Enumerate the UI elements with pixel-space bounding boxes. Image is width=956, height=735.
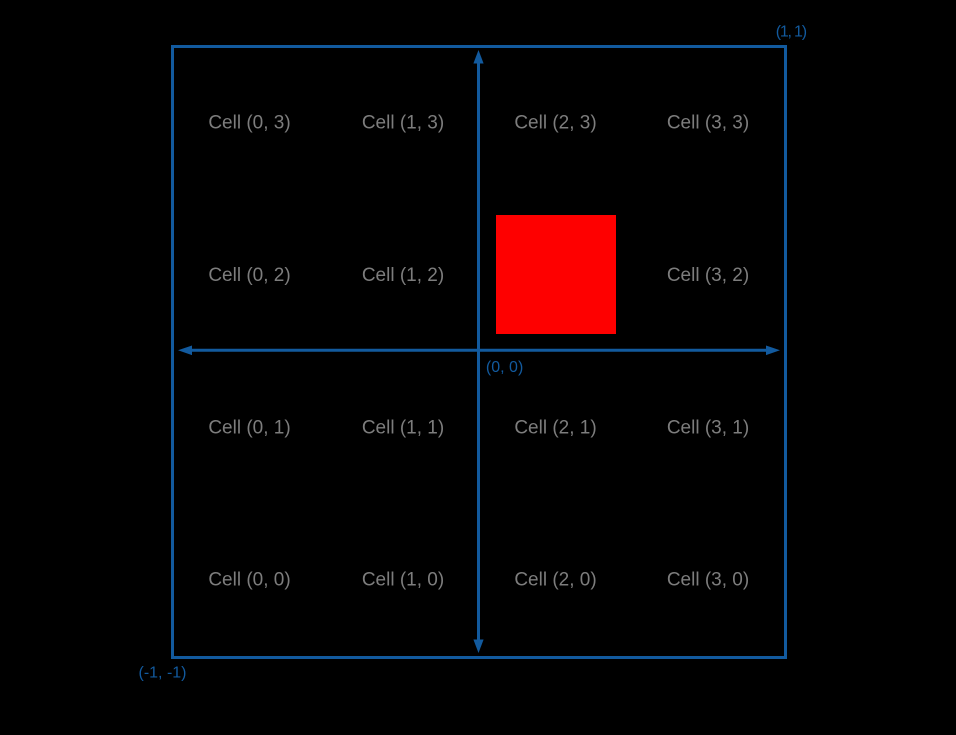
svg-text:Cell (0, 1): Cell (0, 1) bbox=[208, 417, 290, 438]
svg-text:Cell (2, 3): Cell (2, 3) bbox=[514, 113, 596, 134]
svg-text:Cell (0, 3): Cell (0, 3) bbox=[208, 113, 290, 134]
svg-text:(0, 0): (0, 0) bbox=[486, 359, 523, 376]
svg-text:Cell (0, 0): Cell (0, 0) bbox=[208, 570, 290, 591]
svg-text:Cell (3, 3): Cell (3, 3) bbox=[667, 113, 749, 134]
svg-text:Cell (1, 0): Cell (1, 0) bbox=[362, 570, 444, 591]
svg-text:Cell (3, 0): Cell (3, 0) bbox=[667, 570, 749, 591]
svg-text:Cell (2, 0): Cell (2, 0) bbox=[514, 570, 596, 591]
svg-text:Cell (3, 2): Cell (3, 2) bbox=[667, 265, 749, 286]
svg-text:(1, 1): (1, 1) bbox=[776, 24, 807, 41]
svg-text:Cell (1, 1): Cell (1, 1) bbox=[362, 417, 444, 438]
svg-text:Cell (1, 2): Cell (1, 2) bbox=[362, 265, 444, 286]
svg-text:Cell (2, 1): Cell (2, 1) bbox=[514, 417, 596, 438]
svg-text:(-1, -1): (-1, -1) bbox=[139, 665, 187, 682]
svg-text:Cell (1, 3): Cell (1, 3) bbox=[362, 113, 444, 134]
svg-text:Cell (3, 1): Cell (3, 1) bbox=[667, 417, 749, 438]
svg-text:Cell (0, 2): Cell (0, 2) bbox=[208, 265, 290, 286]
